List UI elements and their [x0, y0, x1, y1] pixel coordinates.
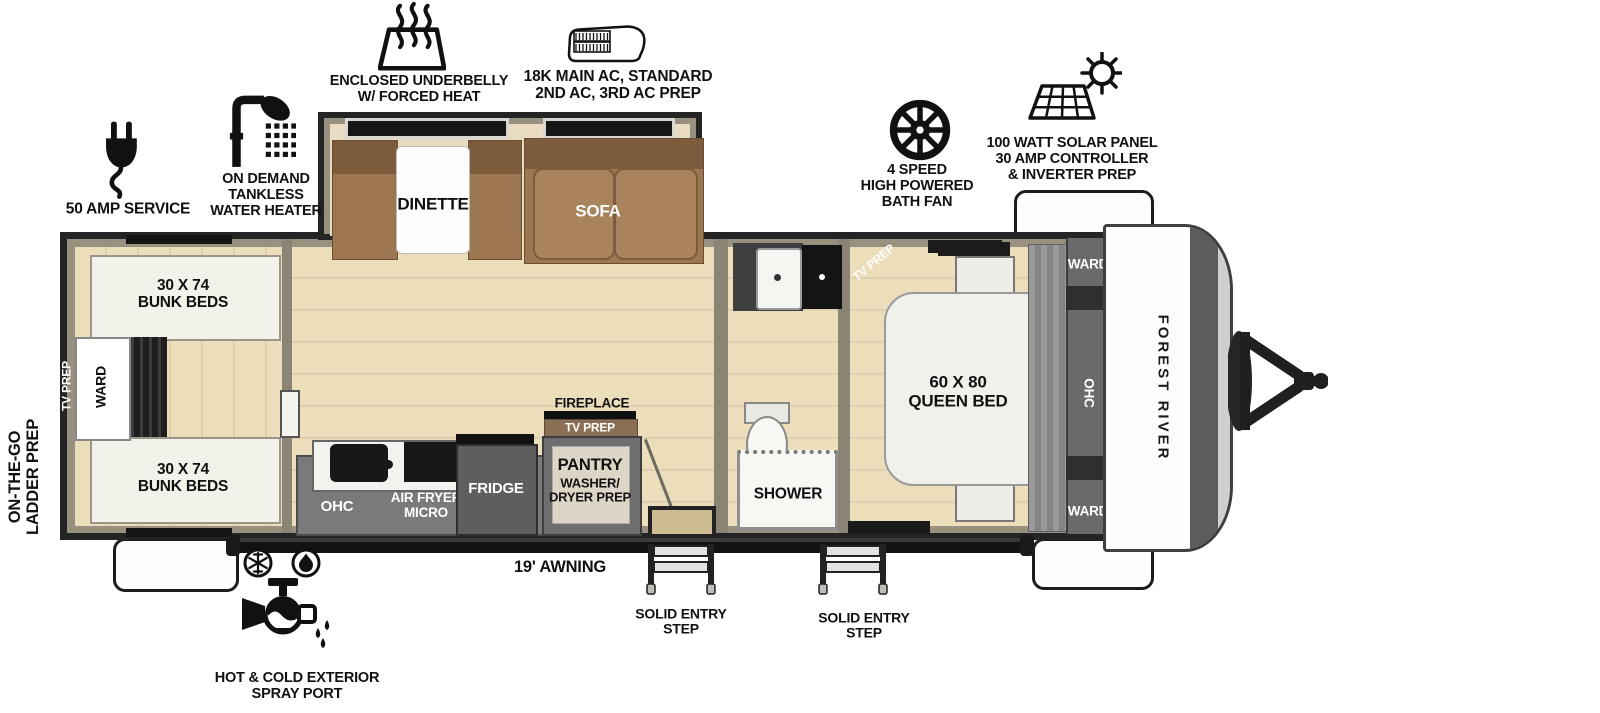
bedroom-entry-door — [848, 521, 930, 534]
bunk-tv-prep-label: TV PREP — [60, 361, 73, 411]
dinette-label: DINETTE — [397, 196, 468, 215]
entry-step-front — [646, 544, 716, 596]
bunk-ward-label: WARD — [93, 366, 108, 408]
fireplace-tv-prep-label: TV PREP — [565, 421, 615, 434]
bath-sink-faucet — [774, 274, 781, 281]
rv-floorplan-diagram: 30 X 74 BUNK BEDS 30 X 74 BUNK BEDS WARD… — [0, 0, 1600, 713]
entry-door-mat — [648, 506, 716, 538]
sink-faucet — [384, 460, 393, 469]
forced-heat-icon — [378, 0, 446, 74]
cooktop — [404, 442, 458, 482]
bunk-ladder — [125, 337, 167, 437]
hitch-tongue — [1228, 324, 1328, 439]
power-plug-icon — [96, 120, 146, 200]
fridge-counter-top — [456, 434, 534, 444]
sofa-label: SOFA — [575, 203, 621, 222]
fireplace-label: FIREPLACE — [555, 397, 630, 412]
kitchen-ohc-label: OHC — [321, 499, 354, 516]
pantry-sub: WASHER/ DRYER PREP — [549, 477, 631, 506]
brand-logo: FOREST RIVER — [1154, 315, 1171, 462]
fifty-amp-label: 50 AMP SERVICE — [66, 200, 190, 217]
wall-bunkroom — [282, 239, 292, 533]
medicine-cabinet-knob — [819, 274, 825, 280]
bunk-bottom-label: 30 X 74 BUNK BEDS — [138, 461, 228, 495]
dinette-bench-right — [468, 140, 522, 260]
bath-fan-label: 4 SPEED HIGH POWERED BATH FAN — [861, 163, 974, 211]
bed-headboard — [1028, 244, 1070, 532]
awning-bar — [230, 538, 1030, 553]
bunkroom-door — [280, 390, 300, 438]
fireplace-bar — [544, 411, 636, 419]
entry-step-rear-label: SOLID ENTRY STEP — [818, 611, 909, 642]
solar-panel-icon — [1026, 52, 1122, 136]
shower-head-icon — [228, 92, 296, 170]
queen-bed-label: 60 X 80 QUEEN BED — [908, 373, 1007, 410]
main-ac-label: 18K MAIN AC, STANDARD 2ND AC, 3RD AC PRE… — [524, 68, 713, 102]
dinette-bench-left — [332, 140, 398, 260]
pantry-title: PANTRY — [558, 456, 623, 474]
entry-step-rear — [818, 544, 888, 596]
awning-label: 19' AWNING — [514, 558, 606, 576]
bunk-bottom-window — [126, 528, 232, 537]
tankless-label: ON DEMAND TANKLESS WATER HEATER — [210, 172, 321, 220]
ac-unit-icon — [564, 24, 656, 66]
bunk-top-label: 30 X 74 BUNK BEDS — [138, 277, 228, 311]
kitchen-sink — [330, 444, 388, 482]
bedroom-ohc-label: OHC — [1081, 378, 1096, 407]
nightstand-trim-top — [938, 242, 1010, 256]
slideout-window-right — [543, 118, 675, 139]
air-fryer-micro-label: AIR FRYER MICRO — [391, 491, 461, 521]
bunk-top-window — [126, 235, 232, 244]
wall-bath-left — [714, 239, 728, 533]
sofa-cushion-right — [614, 168, 698, 260]
slideout-window-left — [345, 118, 509, 139]
spray-port-icon — [232, 548, 350, 660]
entry-step-front-label: SOLID ENTRY STEP — [635, 607, 726, 638]
storage-door-bottom-rear — [113, 538, 239, 592]
fridge-label: FRIDGE — [468, 481, 523, 498]
bath-fan-icon — [888, 98, 952, 162]
spray-port-label: HOT & COLD EXTERIOR SPRAY PORT — [215, 671, 380, 703]
shower-label: SHOWER — [754, 485, 823, 502]
underbelly-label: ENCLOSED UNDERBELLY W/ FORCED HEAT — [330, 74, 509, 106]
solar-label: 100 WATT SOLAR PANEL 30 AMP CONTROLLER &… — [986, 136, 1157, 184]
ladder-prep-label: ON-THE-GO LADDER PREP — [6, 419, 42, 535]
awning-end-front — [1020, 535, 1034, 556]
cap-stripe-dark — [1190, 227, 1218, 549]
